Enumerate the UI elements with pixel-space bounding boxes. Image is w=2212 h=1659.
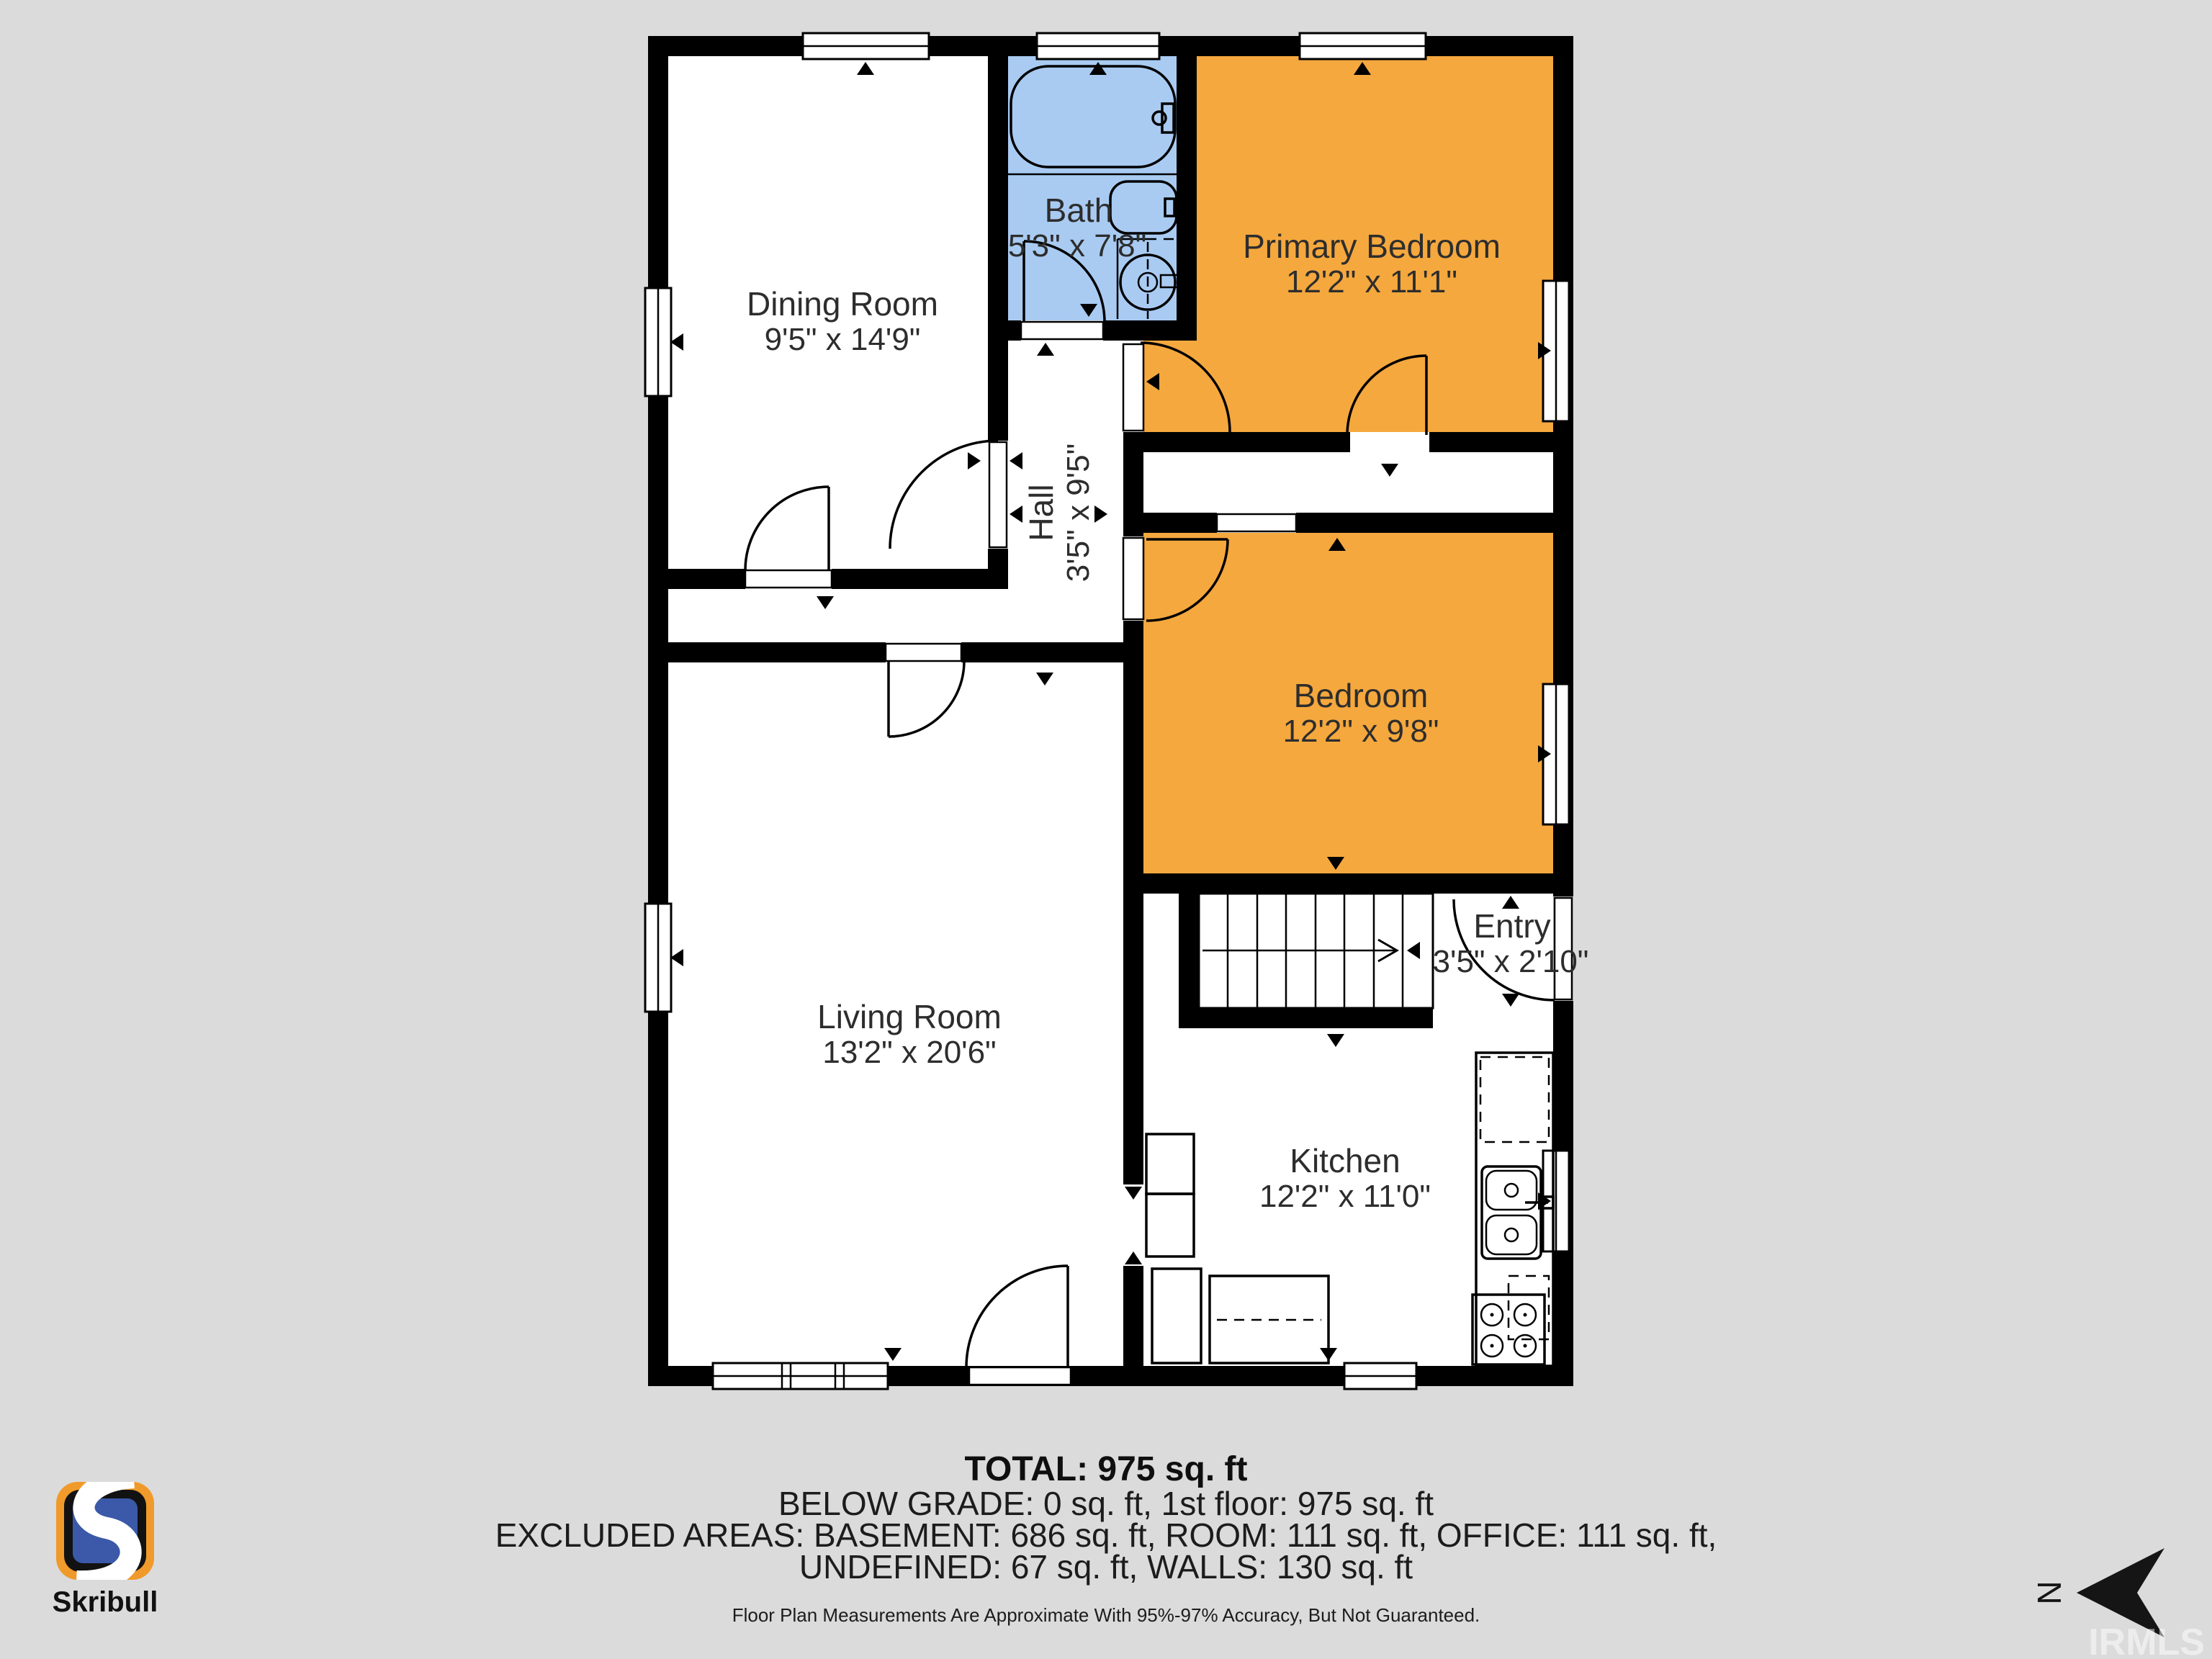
watermark: IRMLS (2088, 1622, 2205, 1659)
staircase (1199, 894, 1433, 1008)
room-dims-entry: 3'5" x 2'10" (1433, 944, 1589, 979)
room-dims-primary-bedroom: 12'2" x 11'1" (1286, 264, 1457, 300)
primary-bedroom-nook-floor (1143, 341, 1197, 432)
window (1037, 33, 1159, 59)
window (803, 33, 929, 59)
room-dims-dining-room: 9'5" x 14'9" (765, 322, 921, 357)
room-dims-bedroom: 12'2" x 9'8" (1283, 714, 1439, 749)
room-label-living-room: Living Room (817, 998, 1002, 1035)
room-dims-kitchen: 12'2" x 11'0" (1259, 1179, 1431, 1214)
room-label-kitchen: Kitchen (1290, 1142, 1400, 1179)
summary-disclaimer: Floor Plan Measurements Are Approximate … (732, 1604, 1480, 1626)
window (1300, 33, 1426, 59)
north-label: N (2031, 1581, 2068, 1604)
window (645, 904, 671, 1012)
room-label-hall: Hall (1022, 484, 1060, 541)
floor-plan: Dining Room 9'5" x 14'9" Bath 5'3" x 7'8… (645, 33, 1588, 1389)
logo-text: Skribull (53, 1586, 158, 1618)
window (1344, 1363, 1416, 1389)
floor-plan-canvas: Dining Room 9'5" x 14'9" Bath 5'3" x 7'8… (0, 0, 2212, 1659)
room-label-bath: Bath (1045, 192, 1113, 229)
room-label-dining-room: Dining Room (747, 285, 938, 323)
floor-plan-page: Dining Room 9'5" x 14'9" Bath 5'3" x 7'8… (0, 0, 2212, 1659)
room-label-entry: Entry (1473, 907, 1550, 945)
room-dims-hall: 3'5" x 9'5" (1061, 444, 1096, 582)
logo: Skribull (53, 1478, 158, 1618)
room-dims-bath: 5'3" x 7'8" (1008, 228, 1146, 264)
window (713, 1363, 888, 1389)
room-dims-living-room: 13'2" x 20'6" (822, 1035, 996, 1070)
summary-total: TOTAL: 975 sq. ft (965, 1450, 1248, 1488)
room-label-primary-bedroom: Primary Bedroom (1243, 228, 1501, 265)
summary-undefined-walls: UNDEFINED: 67 sq. ft, WALLS: 130 sq. ft (799, 1548, 1413, 1586)
window (645, 288, 671, 396)
summary-block: TOTAL: 975 sq. ft BELOW GRADE: 0 sq. ft,… (495, 1450, 1717, 1626)
room-label-bedroom: Bedroom (1294, 677, 1429, 714)
